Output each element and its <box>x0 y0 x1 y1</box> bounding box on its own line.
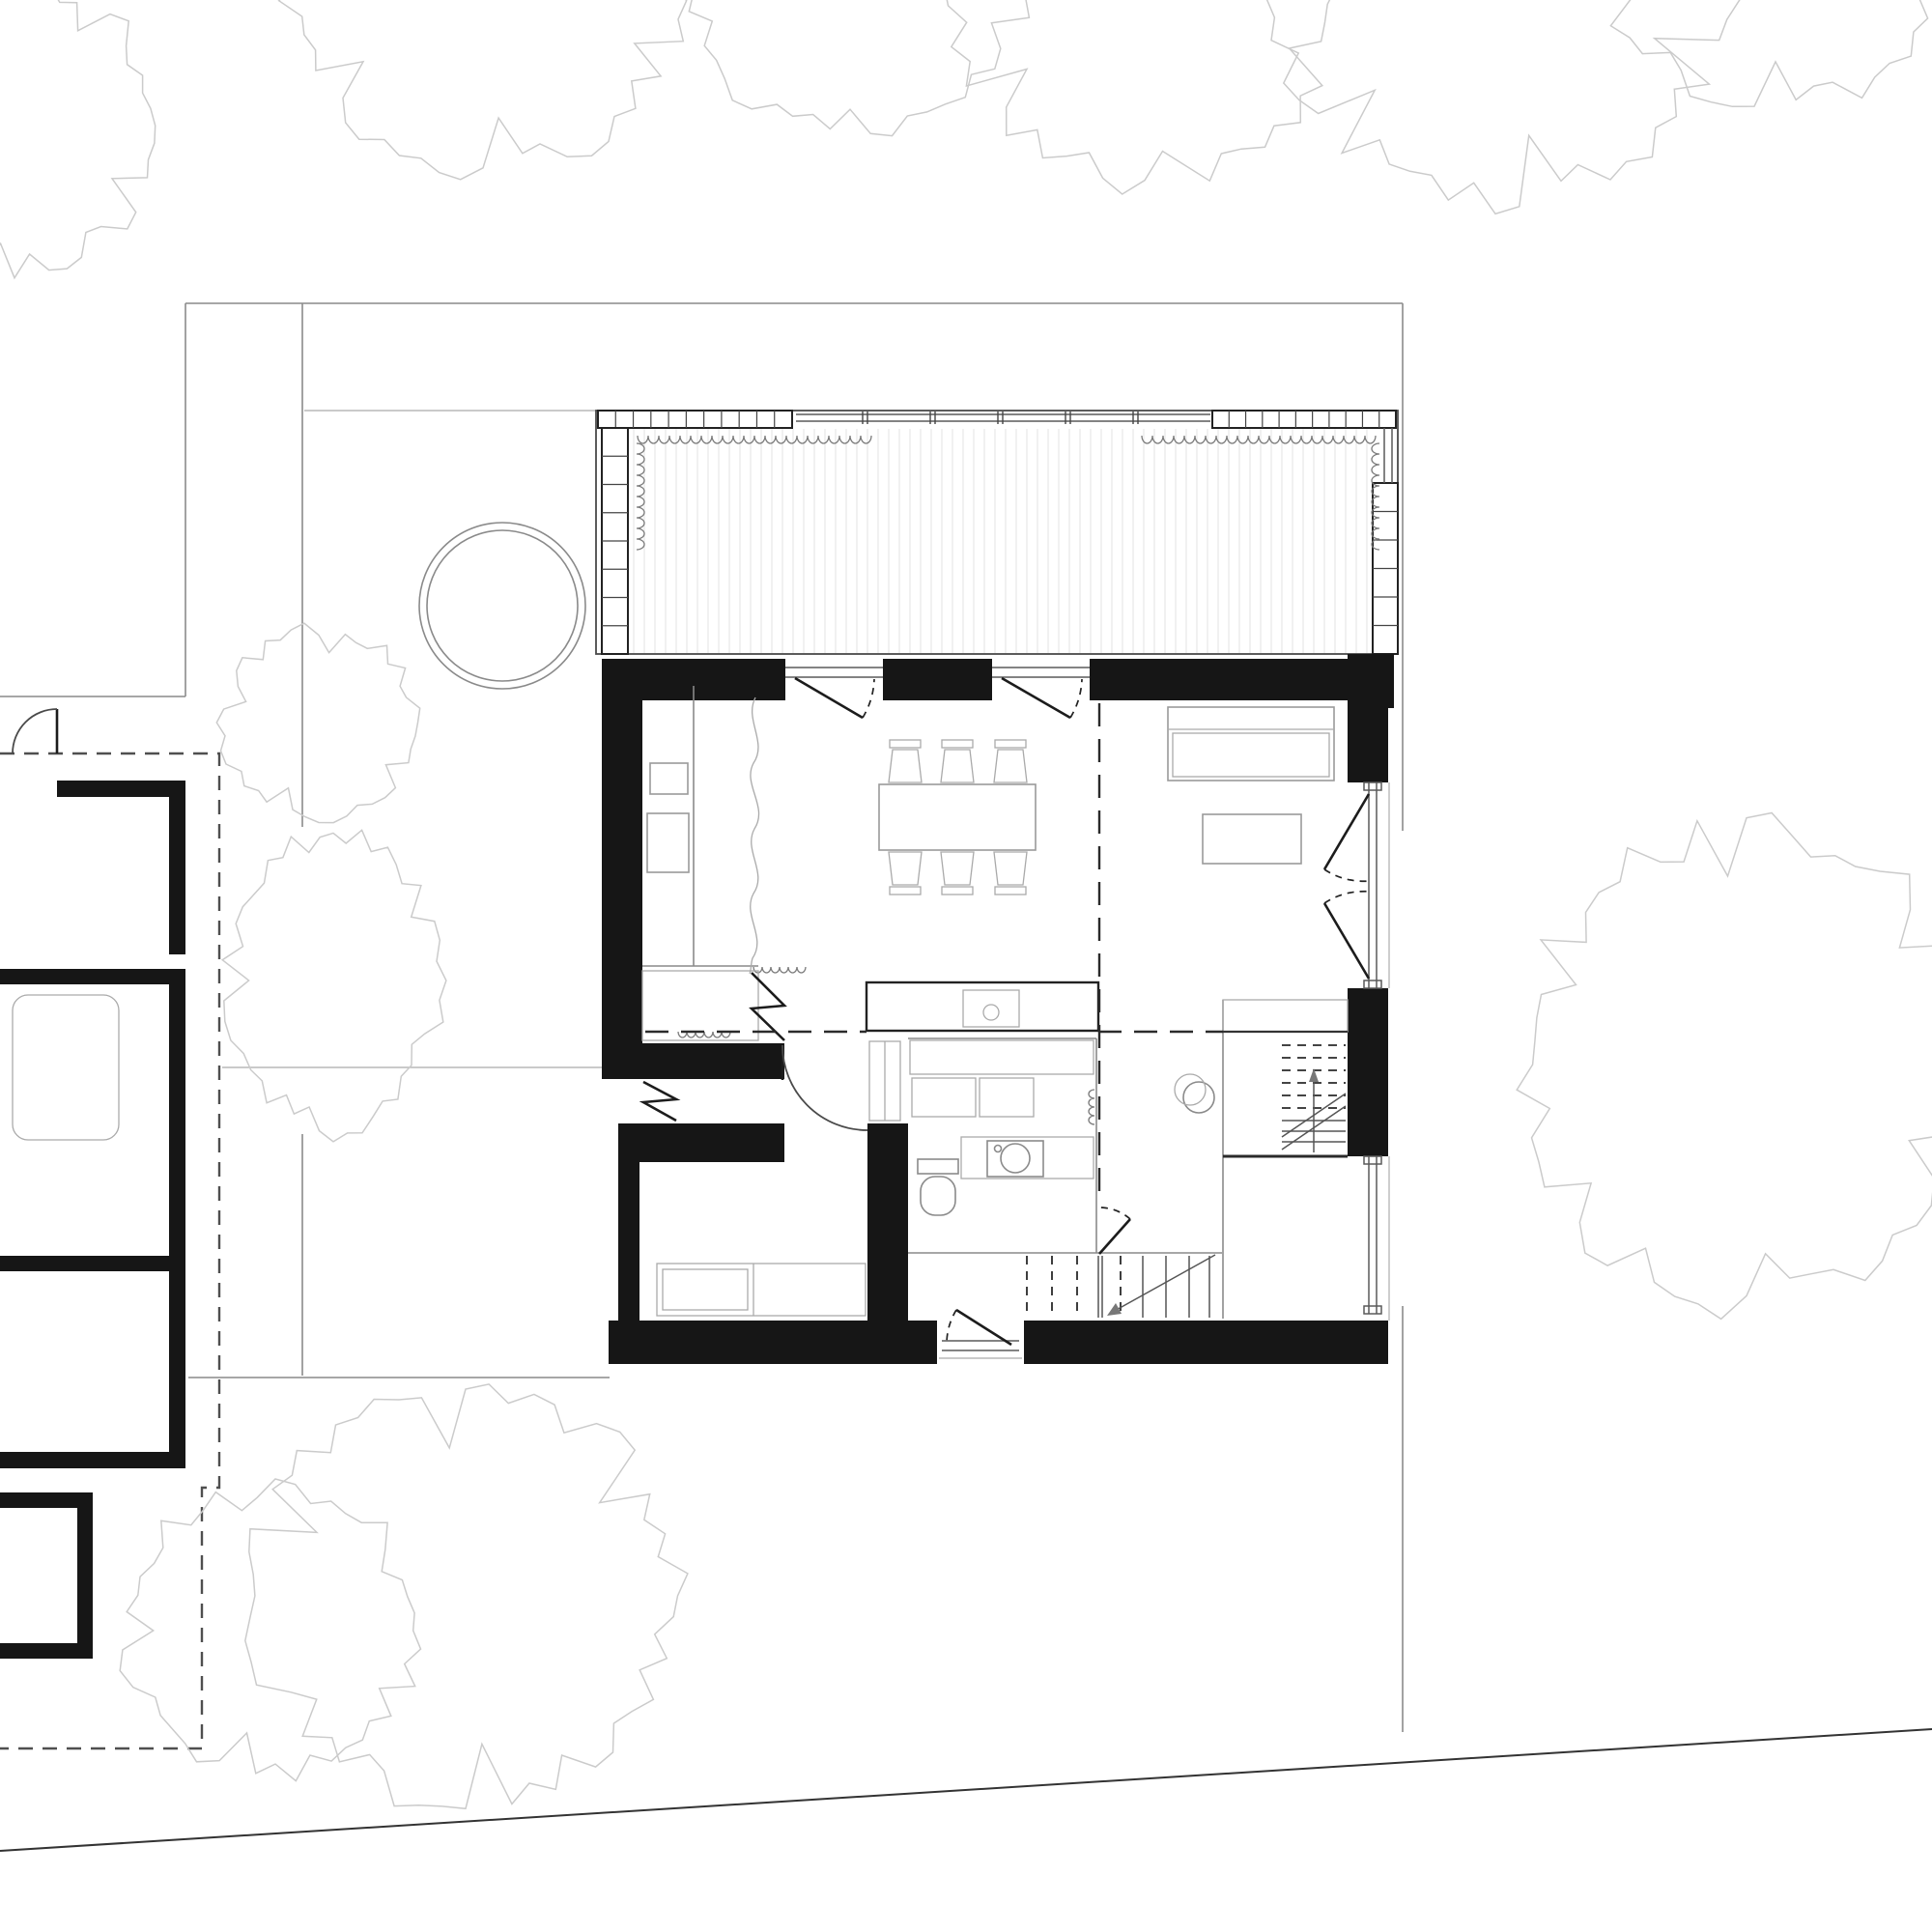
deck-outline <box>596 411 1398 654</box>
window-jamb <box>1364 782 1381 790</box>
neighbor-annex-wall <box>77 1492 93 1659</box>
floor-plan-page <box>0 0 1932 1932</box>
washing-machine-knob <box>995 1146 1002 1152</box>
wall-south-right <box>1024 1321 1388 1364</box>
chair-seat <box>941 750 974 782</box>
hall <box>1175 1074 1214 1113</box>
french-door-glazing <box>1369 782 1377 988</box>
stair-upper <box>1282 1045 1346 1152</box>
storage-unit <box>657 1264 866 1316</box>
washing-machine-drum <box>1001 1144 1030 1173</box>
garden-circle-inner <box>427 530 578 681</box>
tree-right <box>1517 813 1932 1320</box>
french-door-swing-lower <box>1324 892 1371 903</box>
chair <box>994 852 1027 895</box>
stair-arrow <box>1107 1303 1122 1316</box>
deck-window-right-top <box>1384 428 1392 483</box>
neighbor-wall <box>0 1452 185 1468</box>
entry-door-swing <box>947 1310 956 1345</box>
dining-table <box>879 784 1036 850</box>
neighbor-wall <box>0 969 185 984</box>
window-glazing-lower <box>1369 1156 1377 1314</box>
folding-door-passage <box>643 1082 676 1121</box>
bath-counter-lower <box>961 1137 1094 1179</box>
wall-corner-ne <box>1348 654 1394 708</box>
chair <box>889 852 922 895</box>
hall-basin <box>1183 1082 1214 1113</box>
curtain-left <box>637 443 644 550</box>
stair-treads-dashed <box>1027 1256 1077 1318</box>
sofa <box>1168 707 1334 781</box>
interior-partitions <box>908 1000 1348 1319</box>
site-boundaries <box>0 303 1932 1851</box>
stair-lower <box>1027 1207 1215 1318</box>
chair-back <box>890 740 921 748</box>
window-glazing <box>1384 428 1392 483</box>
wall-core <box>867 1123 908 1321</box>
entry-door-leaf <box>956 1310 1011 1345</box>
neighbor-wall <box>169 984 185 1452</box>
neighbor-wall <box>169 797 185 954</box>
tree-bottom-small <box>120 1479 420 1781</box>
wall-east-pier-upper <box>1348 700 1388 782</box>
window-jamb <box>1364 1156 1381 1164</box>
plot-dashed-line <box>0 753 219 1748</box>
kitchen-appliance <box>647 813 689 872</box>
stair-treads <box>1143 1256 1209 1318</box>
tree-top-3 <box>658 0 1038 136</box>
coffee-table <box>1203 814 1301 864</box>
tree-bottom-large <box>245 1384 688 1808</box>
chair-back <box>942 740 973 748</box>
kitchen-appliance <box>650 763 688 794</box>
wall-south-left <box>609 1321 937 1364</box>
sliding-track-ticks <box>863 412 1138 424</box>
wall-storage-west <box>618 1162 639 1321</box>
deck-slats-top-left <box>598 411 792 428</box>
curtain-hall <box>1089 1090 1094 1124</box>
storage-room <box>657 1264 866 1316</box>
bath-counter <box>910 1040 1094 1074</box>
neighbor-building <box>0 709 185 1659</box>
window-jamb <box>1364 980 1381 988</box>
entry <box>939 1310 1022 1358</box>
deck-sliding-track <box>796 412 1210 424</box>
garden-circle <box>419 523 585 689</box>
chair <box>941 740 974 782</box>
neighbor-gate-swing <box>13 709 57 753</box>
wall-north-right <box>1090 659 1391 700</box>
chair-seat <box>889 852 922 885</box>
door-swing <box>863 679 874 718</box>
curtain-top-left <box>638 436 871 443</box>
curtain-top-right <box>1142 436 1376 443</box>
chair-seat <box>889 750 922 782</box>
bath-cabinet <box>912 1078 976 1117</box>
street-edge-line <box>0 1729 1932 1851</box>
chair-back <box>995 740 1026 748</box>
floor-plan-drawing <box>0 0 1932 1932</box>
tree-top-6 <box>1584 0 1932 106</box>
deck-slats-top-right <box>1212 411 1396 428</box>
chair-seat <box>941 852 974 885</box>
hall-door-swing <box>782 1045 867 1130</box>
chair-back <box>890 887 921 895</box>
door-leaf <box>795 678 863 718</box>
neighbor-annex-wall <box>0 1643 93 1659</box>
french-door-leaf-upper <box>1324 794 1369 869</box>
toilet-tank <box>918 1159 958 1174</box>
chair <box>994 740 1027 782</box>
wall-north-mid <box>883 659 992 700</box>
understair-cabinet <box>1223 1000 1348 1032</box>
hall-basin-back <box>1175 1074 1206 1105</box>
folding-door-pantry <box>752 973 784 1040</box>
door-glazing <box>785 668 883 677</box>
bath-cabinet <box>980 1078 1034 1117</box>
chair-back <box>995 887 1026 895</box>
door-glazing <box>992 668 1090 677</box>
chair-back <box>942 887 973 895</box>
garden-circle-outer <box>419 523 585 689</box>
deck-slat-screens <box>598 411 1398 654</box>
trees <box>0 0 1932 1808</box>
pantry-cabinet <box>642 971 758 1040</box>
chair-seat <box>994 852 1027 885</box>
stair-door-swing <box>1099 1207 1130 1219</box>
stair-direction-line <box>1113 1255 1215 1312</box>
window-jamb <box>1364 1306 1381 1314</box>
door-swing <box>1070 679 1082 718</box>
chair <box>941 852 974 895</box>
tree-top-2 <box>279 0 687 180</box>
living-room <box>1168 707 1348 1032</box>
tree-top-5 <box>1251 0 1740 213</box>
french-door-leaf-lower <box>1324 903 1369 979</box>
wall-south-kitchen <box>602 1043 784 1079</box>
tree-top-1 <box>0 0 156 278</box>
tree-garden-upper <box>216 623 419 822</box>
stair-door-leaf <box>1099 1219 1130 1254</box>
deck-floor-boards <box>634 429 1367 653</box>
wall-east-pier-mid <box>1348 988 1388 1156</box>
chair <box>889 740 922 782</box>
parked-car <box>13 995 119 1140</box>
wall-west <box>602 659 642 1079</box>
french-door-swing-upper <box>1324 869 1371 881</box>
neighbor-wall <box>0 1256 169 1271</box>
kitchen-curtain-wave <box>750 697 759 974</box>
toilet-bowl <box>921 1177 955 1215</box>
wall-storage-north <box>618 1123 784 1162</box>
tree-garden-lower <box>222 830 446 1142</box>
stair-cut-edge <box>1098 1256 1102 1318</box>
tree-top-4 <box>941 0 1346 194</box>
curtain-pantry <box>753 967 806 973</box>
neighbor-wall <box>57 781 185 797</box>
chair-seat <box>994 750 1027 782</box>
door-leaf <box>1002 678 1070 718</box>
storage-inner <box>663 1269 748 1310</box>
